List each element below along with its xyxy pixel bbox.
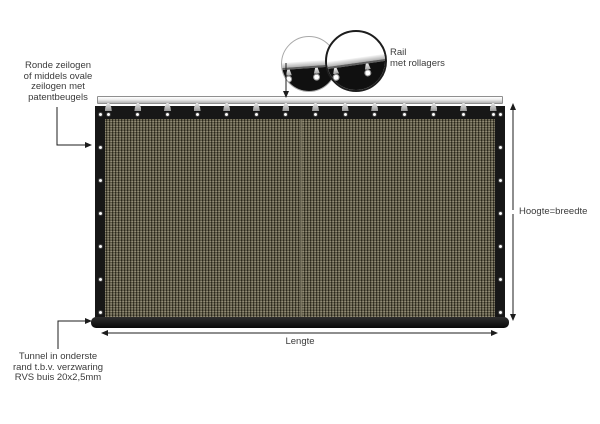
- top-eyelet: [165, 112, 170, 117]
- top-eyelet: [106, 112, 111, 117]
- right-edge-eyelet: [498, 145, 503, 150]
- right-edge-eyelet: [498, 277, 503, 282]
- leader-eyelets-arrow: [57, 107, 86, 145]
- label-height-dimension: Hoogte=breedte: [519, 207, 597, 218]
- top-eyelet: [491, 112, 496, 117]
- tunnel-hem: [91, 317, 509, 328]
- rail-roller-hanger: [460, 103, 467, 111]
- left-edge-eyelet: [98, 178, 103, 183]
- rail-roller-hanger: [401, 103, 408, 111]
- left-edge-eyelet: [98, 244, 103, 249]
- top-eyelet: [431, 112, 436, 117]
- top-eyelet: [372, 112, 377, 117]
- diagram-canvas: Ronde zeilogen of middels ovale zeilogen…: [0, 0, 600, 424]
- top-eyelet: [461, 112, 466, 117]
- top-eyelet: [135, 112, 140, 117]
- rail-roller-hanger: [194, 103, 201, 111]
- top-eyelet: [402, 112, 407, 117]
- rail-roller-hanger: [342, 103, 349, 111]
- right-edge-eyelet: [498, 211, 503, 216]
- rail-roller-hanger: [253, 103, 260, 111]
- label-length-dimension: Lengte: [262, 337, 338, 348]
- label-line: RVS buis 20x2,5mm: [4, 373, 112, 384]
- label-line: Tunnel in onderste: [4, 352, 112, 363]
- rail-roller-hanger: [134, 103, 141, 111]
- top-eyelet: [343, 112, 348, 117]
- top-eyelet: [195, 112, 200, 117]
- left-edge-eyelet: [98, 145, 103, 150]
- left-edge-eyelet: [98, 211, 103, 216]
- leader-tunnel-arrow: [58, 321, 86, 349]
- label-tunnel: Tunnel in onderste rand t.b.v. verzwarin…: [4, 352, 112, 384]
- top-eyelet: [283, 112, 288, 117]
- label-line: patentbeugels: [8, 93, 108, 104]
- label-line: Ronde zeilogen: [8, 61, 108, 72]
- label-rail: Rail met rollagers: [390, 48, 480, 69]
- right-edge-eyelet: [498, 244, 503, 249]
- right-edge-eyelet: [498, 112, 503, 117]
- rail-roller-hanger: [430, 103, 437, 111]
- rail-roller-hanger: [105, 103, 112, 111]
- rail-roller-hanger: [490, 103, 497, 111]
- left-edge-eyelet: [98, 310, 103, 315]
- label-eyelets: Ronde zeilogen of middels ovale zeilogen…: [8, 61, 108, 103]
- rail-roller-hanger: [312, 103, 319, 111]
- left-edge-eyelet: [98, 277, 103, 282]
- detail-circle-right: [325, 30, 387, 92]
- top-eyelet: [313, 112, 318, 117]
- top-eyelet: [224, 112, 229, 117]
- left-edge-eyelet: [98, 112, 103, 117]
- detail-rail-view: [325, 30, 387, 92]
- rail-roller-hanger: [282, 103, 289, 111]
- fabric-center-seam: [300, 119, 302, 318]
- rail-roller-hanger: [223, 103, 230, 111]
- right-edge-eyelet: [498, 310, 503, 315]
- label-line: Rail: [390, 48, 480, 59]
- right-edge-eyelet: [498, 178, 503, 183]
- rail-roller-hanger: [371, 103, 378, 111]
- rail-bar: [97, 96, 503, 104]
- label-line: met rollagers: [390, 59, 480, 70]
- top-eyelet: [254, 112, 259, 117]
- rail-roller-hanger: [164, 103, 171, 111]
- screen-panel: [95, 106, 505, 318]
